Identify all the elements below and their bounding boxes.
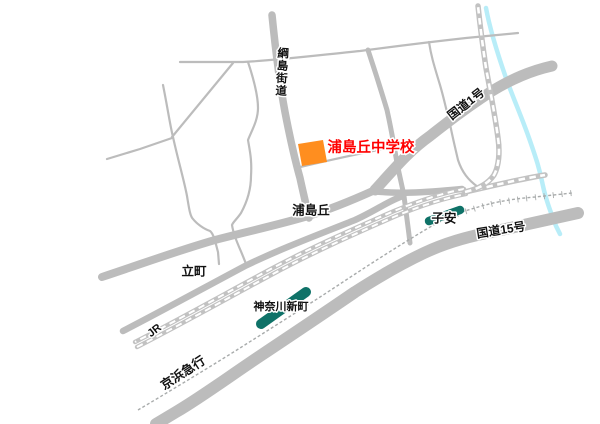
road-diagonal-west — [172, 63, 233, 137]
tachimachi-label: 立町 — [181, 264, 207, 279]
road-route15 — [156, 213, 578, 424]
koyasu-label: 子安 — [431, 211, 456, 226]
map-labels: 浦島丘中学校 綱島街道 国道1号 浦島丘 立町 JR 京浜急行 神奈川新町 子安… — [145, 46, 526, 393]
road-urashimaoka-tachimachi — [102, 190, 375, 277]
kanagawa-shinmachi-label: 神奈川新町 — [254, 299, 309, 313]
road-west-stub — [107, 138, 172, 159]
urashimaoka-label: 浦島丘 — [292, 203, 330, 218]
route15-label: 国道15号 — [475, 218, 526, 241]
school-marker — [298, 140, 327, 166]
road-tsunashima-kaido — [272, 15, 309, 218]
access-map: 浦島丘中学校 綱島街道 国道1号 浦島丘 立町 JR 京浜急行 神奈川新町 子安… — [0, 0, 600, 424]
tsunashima-kaido-label: 綱島街道 — [274, 46, 290, 98]
road-top-horizontal — [180, 33, 518, 62]
school-label: 浦島丘中学校 — [328, 138, 415, 156]
keikyu-tick-marks — [457, 193, 572, 214]
map-canvas: 浦島丘中学校 綱島街道 国道1号 浦島丘 立町 JR 京浜急行 神奈川新町 子安… — [0, 0, 600, 424]
